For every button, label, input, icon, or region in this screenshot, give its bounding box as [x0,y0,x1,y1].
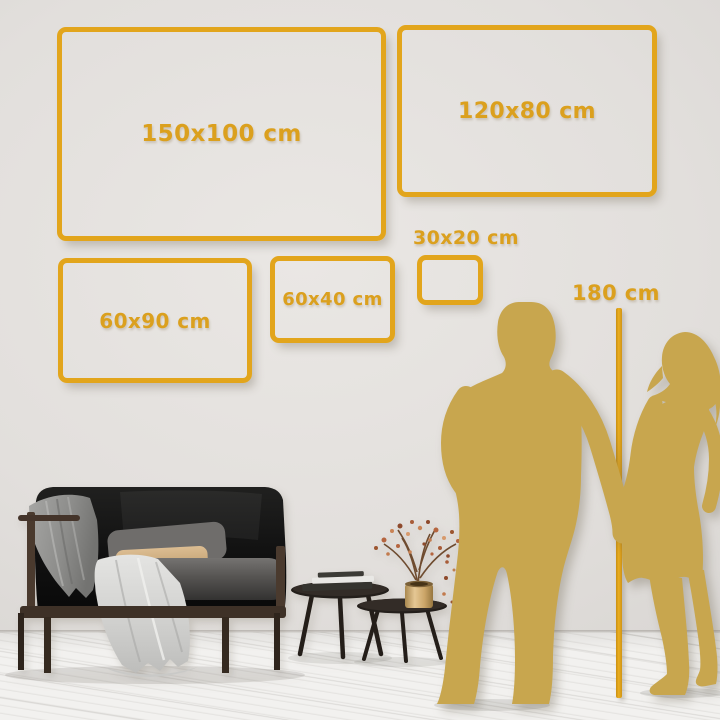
woman-hair-wisp [647,366,663,392]
table-shadow [354,657,450,667]
sofa-leg [274,613,280,670]
sofa-leg [18,613,24,670]
couple-silhouette [434,302,720,711]
sofa-wood-rail [18,515,80,521]
woman-back-leg [687,568,718,686]
sofa [5,487,305,684]
man-silhouette [437,302,582,704]
sofa-leg [222,617,229,673]
woman-right-arm [702,412,716,506]
coffee-tables [288,520,462,667]
book-stack [302,571,375,592]
sofa-wood-post-right [276,546,285,616]
room-scene: 150x100 cm 120x80 cm 60x90 cm 60x40 cm 3… [0,0,720,720]
sofa-bottom-rail [20,606,286,618]
brass-vase [405,584,433,608]
scene-illustration [0,0,720,720]
sofa-leg [44,617,51,673]
sofa-wood-post [27,512,35,618]
woman-front-leg [649,574,689,695]
vase-opening [410,582,428,586]
